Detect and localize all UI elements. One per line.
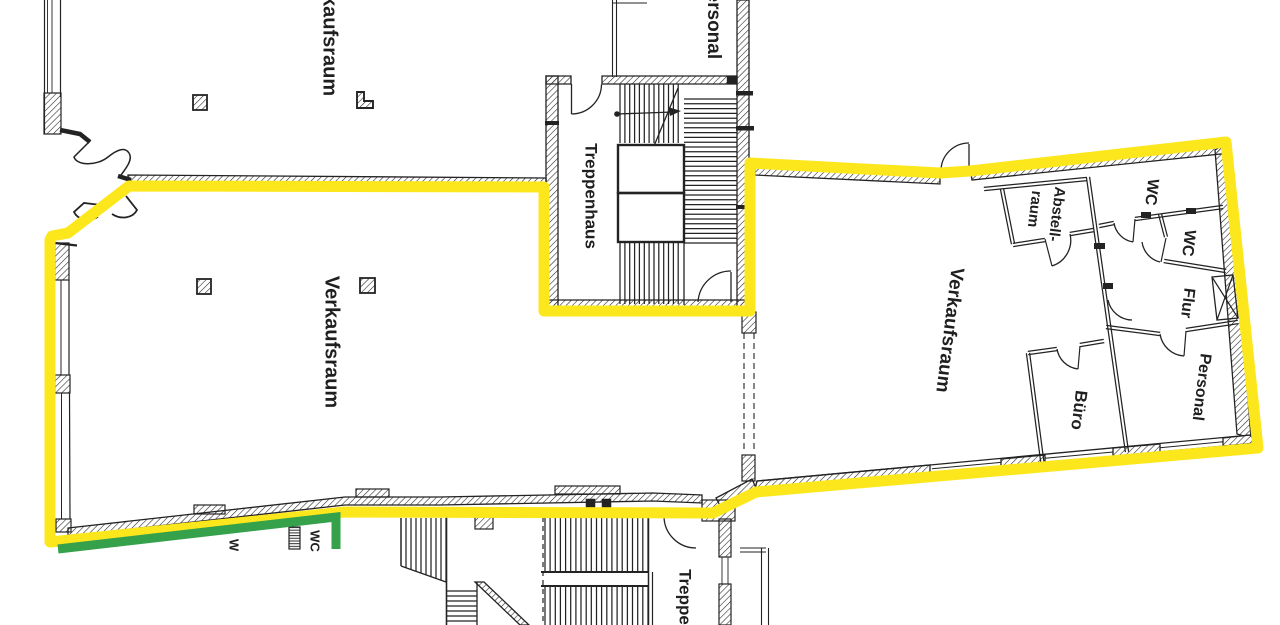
svg-text:Treppenhaus: Treppenhaus: [582, 143, 601, 249]
svg-text:WC: WC: [1178, 229, 1198, 258]
svg-text:WC: WC: [1141, 178, 1161, 207]
svg-text:WC: WC: [308, 530, 323, 552]
svg-text:Verkaufsraum: Verkaufsraum: [319, 0, 341, 96]
svg-text:W: W: [227, 539, 242, 552]
svg-text:Verkaufsraum: Verkaufsraum: [321, 276, 343, 408]
svg-text:Personal: Personal: [703, 0, 724, 59]
svg-text:Treppenhaus: Treppenhaus: [676, 569, 695, 625]
